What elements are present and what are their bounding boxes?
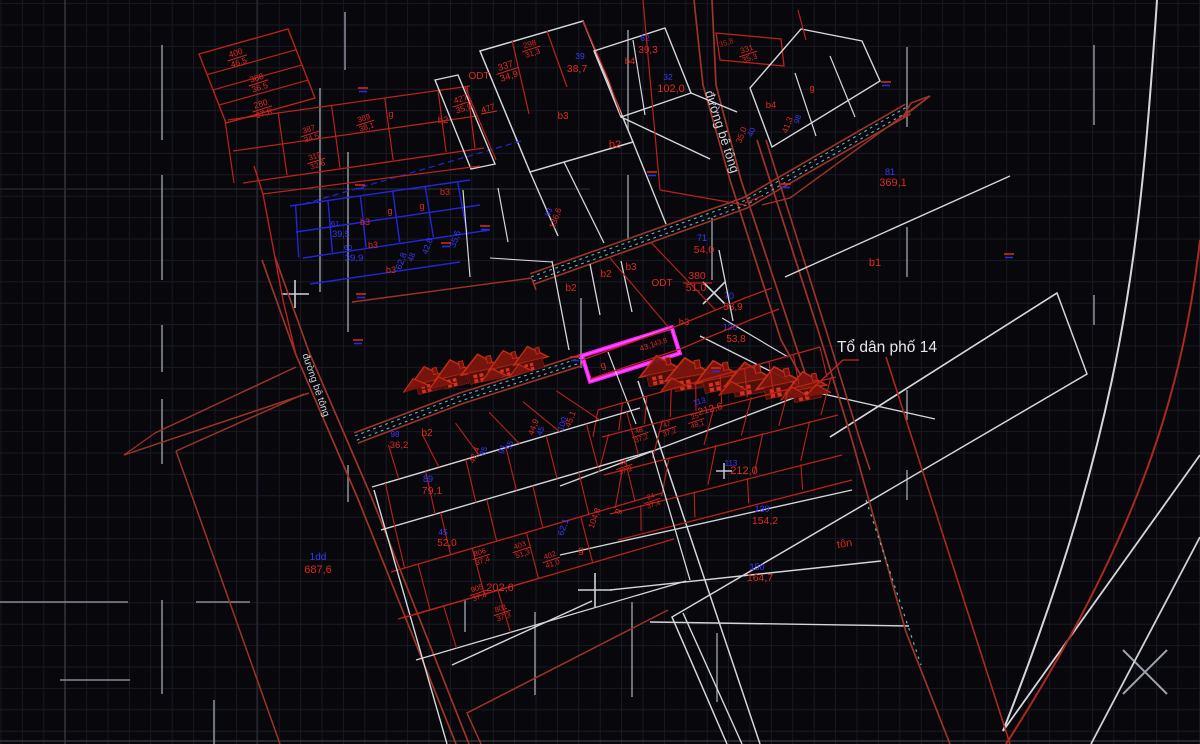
svg-text:154,2: 154,2	[752, 515, 778, 527]
svg-text:164,7: 164,7	[747, 572, 773, 584]
svg-text:g: g	[578, 545, 584, 556]
svg-text:687,6: 687,6	[304, 564, 332, 576]
svg-text:32: 32	[663, 72, 673, 82]
svg-text:1dd: 1dd	[310, 552, 327, 563]
svg-text:202,6: 202,6	[486, 582, 514, 594]
svg-text:113: 113	[725, 459, 738, 468]
svg-text:38,7: 38,7	[567, 63, 588, 75]
svg-text:79,1: 79,1	[422, 485, 443, 497]
svg-text:39,9: 39,9	[345, 253, 364, 264]
svg-text:b3: b3	[557, 111, 569, 122]
svg-text:71: 71	[697, 233, 707, 243]
svg-text:b3: b3	[679, 317, 690, 328]
svg-text:61: 61	[331, 219, 339, 228]
svg-text:b4: b4	[766, 100, 777, 111]
svg-text:g: g	[809, 83, 814, 93]
svg-text:45: 45	[438, 527, 448, 537]
svg-text:53,8: 53,8	[726, 334, 746, 345]
svg-text:98: 98	[391, 430, 400, 439]
svg-text:ODT: ODT	[651, 278, 672, 289]
svg-text:54,0: 54,0	[694, 244, 715, 256]
svg-text:b1: b1	[869, 257, 881, 269]
svg-text:369,1: 369,1	[879, 177, 907, 189]
svg-text:36,2: 36,2	[390, 440, 409, 451]
svg-text:tôn: tôn	[836, 537, 853, 551]
svg-text:b3: b3	[368, 240, 378, 250]
svg-text:Tổ dân phố 14: Tổ dân phố 14	[837, 339, 937, 356]
svg-text:52,0: 52,0	[437, 538, 457, 549]
svg-text:b2: b2	[438, 115, 449, 126]
svg-text:53,9: 53,9	[723, 302, 743, 313]
svg-text:b2: b2	[565, 283, 577, 294]
svg-text:380: 380	[688, 270, 706, 282]
svg-text:b2: b2	[600, 269, 612, 280]
svg-text:b3: b3	[440, 187, 450, 197]
svg-text:39,5: 39,5	[332, 229, 350, 239]
svg-text:g: g	[387, 206, 392, 216]
svg-text:g: g	[388, 109, 393, 119]
svg-text:51,0: 51,0	[686, 282, 707, 294]
svg-text:139: 139	[754, 504, 769, 514]
svg-text:60: 60	[344, 243, 352, 252]
svg-text:62: 62	[640, 33, 650, 43]
svg-text:102,0: 102,0	[657, 83, 685, 95]
svg-text:b4: b4	[625, 56, 636, 67]
svg-text:b3: b3	[625, 262, 637, 273]
svg-text:ODT: ODT	[468, 71, 489, 82]
svg-text:b3: b3	[360, 217, 370, 227]
svg-text:89: 89	[423, 474, 433, 484]
svg-text:b2: b2	[421, 428, 433, 439]
svg-text:g: g	[419, 201, 424, 212]
svg-text:150: 150	[749, 562, 764, 572]
svg-text:39: 39	[575, 51, 585, 61]
svg-text:b2: b2	[609, 139, 621, 151]
svg-text:81: 81	[885, 167, 895, 177]
